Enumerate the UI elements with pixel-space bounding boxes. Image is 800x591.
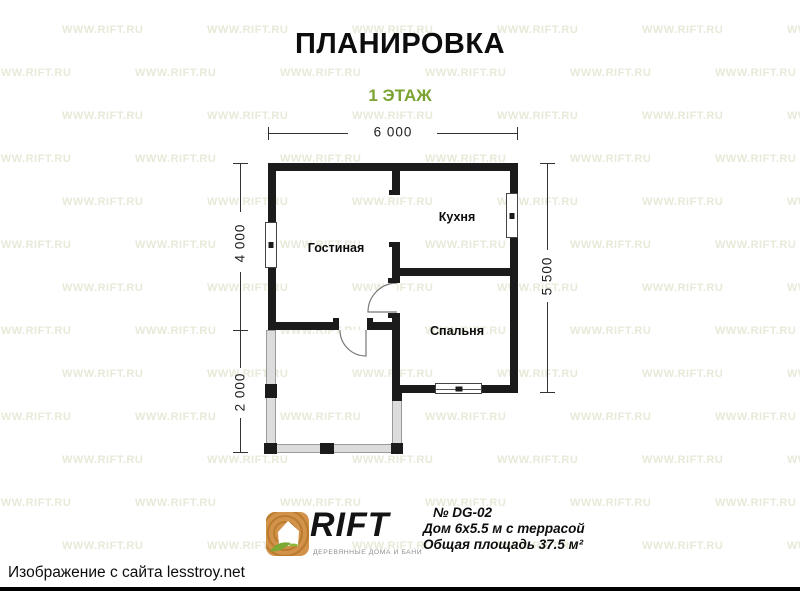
watermark-text: WWW.RIFT.RU	[135, 411, 216, 423]
window-tick	[269, 242, 274, 248]
watermark-text: WWW.RIFT.RU	[0, 153, 71, 165]
watermark-text: WWW.RIFT.RU	[0, 411, 71, 423]
watermark-text: WWW.RIFT.RU	[0, 325, 71, 337]
brand-logo-icon	[266, 512, 309, 556]
window-tick	[455, 386, 462, 391]
dim-tick	[517, 127, 518, 140]
watermark-text: WWW.RIFT.RU	[135, 239, 216, 251]
watermark-text: WWW.RIFT.RU	[62, 282, 143, 294]
door-jamb	[389, 190, 400, 195]
wall-left-upper	[268, 171, 276, 222]
door-jamb	[333, 318, 339, 330]
watermark-text: WWW.RIFT.RU	[425, 239, 506, 251]
brand-tagline: ДЕРЕВЯННЫЕ ДОМА И БАНИ	[313, 549, 422, 556]
room-label-kitchen: Кухня	[439, 210, 476, 224]
watermark-text: WWW.RIFT.RU	[497, 110, 578, 122]
watermark-text: WWW.RIFT.RU	[425, 67, 506, 79]
terrace-post	[265, 384, 277, 398]
dim-line-left-segment	[240, 163, 241, 212]
window-tick	[510, 213, 515, 219]
watermark-text: WWW.RIFT.RU	[715, 411, 796, 423]
watermark-text: WWW.RIFT.RU	[642, 282, 723, 294]
watermark-text: WWW.RIFT.RU	[207, 282, 288, 294]
dim-label-left-upper: 4 000	[233, 224, 248, 263]
dim-tick	[268, 127, 269, 140]
dim-line-left-segment	[240, 272, 241, 330]
model-area: Общая площадь 37.5 м²	[423, 537, 585, 553]
dim-line-right-segment	[547, 302, 548, 392]
wall-living-bottom-left	[276, 322, 338, 330]
watermark-text: WWW.RIFT.RU	[62, 368, 143, 380]
wall-left-lower	[268, 268, 276, 330]
watermark-text: WWW.RIFT.RU	[62, 454, 143, 466]
watermark-text: WWW.RIFT.RU	[642, 196, 723, 208]
watermark-text: WWW.RIFT.RU	[570, 239, 651, 251]
wall-top	[268, 163, 518, 171]
wall-kitchen-bottom	[392, 268, 518, 276]
watermark-text: WWW.RIFT.RU	[787, 282, 800, 294]
model-name: Дом 6х5.5 м с террасой	[423, 521, 585, 537]
model-number: № DG-02	[433, 505, 585, 521]
watermark-text: WWW.RIFT.RU	[715, 67, 796, 79]
source-caption: Изображение с сайта lesstroy.net	[8, 564, 245, 582]
dim-tick	[540, 392, 555, 393]
watermark-text: WWW.RIFT.RU	[787, 196, 800, 208]
room-label-bedroom: Спальня	[430, 324, 484, 338]
watermark-text: WWW.RIFT.RU	[135, 153, 216, 165]
dim-line-left-segment	[240, 418, 241, 452]
watermark-text: WWW.RIFT.RU	[570, 325, 651, 337]
watermark-text: WWW.RIFT.RU	[642, 540, 723, 552]
dim-line-top-right-segment	[437, 133, 518, 134]
door-jamb	[389, 242, 400, 247]
watermark-text: WWW.RIFT.RU	[135, 67, 216, 79]
page-title: ПЛАНИРОВКА	[0, 28, 800, 61]
room-label-living: Гостиная	[308, 241, 365, 255]
dim-label-left-lower: 2 000	[233, 373, 248, 412]
dim-label-width: 6 000	[374, 125, 413, 140]
window-bedroom	[435, 383, 482, 394]
brand-name: RIFT	[310, 506, 390, 545]
terrace-post	[391, 443, 403, 454]
dim-line-top-left-segment	[268, 133, 348, 134]
terrace-post	[264, 443, 277, 454]
watermark-text: WWW.RIFT.RU	[570, 153, 651, 165]
wall-right-upper	[510, 171, 518, 193]
watermark-text: WWW.RIFT.RU	[352, 110, 433, 122]
watermark-text: WWW.RIFT.RU	[352, 282, 433, 294]
watermark-text: WWW.RIFT.RU	[642, 110, 723, 122]
watermark-text: WWW.RIFT.RU	[642, 368, 723, 380]
watermark-text: WWW.RIFT.RU	[207, 368, 288, 380]
watermark-text: WWW.RIFT.RU	[787, 454, 800, 466]
dim-line-left-segment	[240, 330, 241, 368]
terrace-post	[320, 443, 334, 454]
watermark-text: WWW.RIFT.RU	[280, 67, 361, 79]
door-jamb	[388, 278, 400, 283]
watermark-text: WWW.RIFT.RU	[280, 411, 361, 423]
window-living	[265, 222, 277, 268]
dim-tick	[233, 452, 248, 453]
watermark-text: WWW.RIFT.RU	[0, 67, 71, 79]
wall-bedroom-bottom-right	[482, 385, 518, 393]
wall-divider-middle	[392, 242, 400, 283]
model-info: № DG-02 Дом 6х5.5 м с террасой Общая пло…	[423, 505, 585, 553]
watermark-text: WWW.RIFT.RU	[642, 454, 723, 466]
watermark-text: WWW.RIFT.RU	[570, 67, 651, 79]
watermark-text: WWW.RIFT.RU	[715, 239, 796, 251]
watermark-text: WWW.RIFT.RU	[62, 196, 143, 208]
watermark-text: WWW.RIFT.RU	[135, 325, 216, 337]
watermark-text: WWW.RIFT.RU	[62, 540, 143, 552]
watermark-text: WWW.RIFT.RU	[207, 454, 288, 466]
dim-line-right-segment	[547, 163, 548, 250]
watermark-text: WWW.RIFT.RU	[0, 497, 71, 509]
watermark-text: WWW.RIFT.RU	[0, 239, 71, 251]
watermark-text: WWW.RIFT.RU	[497, 454, 578, 466]
wall-right-lower	[510, 238, 518, 393]
watermark-text: WWW.RIFT.RU	[207, 110, 288, 122]
window-kitchen	[506, 193, 518, 238]
watermark-text: WWW.RIFT.RU	[715, 325, 796, 337]
watermark-text: WWW.RIFT.RU	[135, 497, 216, 509]
watermark-text: WWW.RIFT.RU	[787, 110, 800, 122]
watermark-text: WWW.RIFT.RU	[425, 411, 506, 423]
watermark-text: WWW.RIFT.RU	[352, 454, 433, 466]
terrace-post	[392, 392, 402, 401]
floor-plan-page: WWW.RIFT.RUWWW.RIFT.RUWWW.RIFT.RUWWW.RIF…	[0, 0, 800, 591]
watermark-text: WWW.RIFT.RU	[787, 368, 800, 380]
watermark-text: WWW.RIFT.RU	[62, 110, 143, 122]
door-jamb	[367, 318, 373, 330]
watermark-text: WWW.RIFT.RU	[715, 153, 796, 165]
terrace-wall-bottom	[266, 444, 402, 453]
watermark-text: WWW.RIFT.RU	[352, 196, 433, 208]
floor-subtitle: 1 ЭТАЖ	[0, 86, 800, 106]
watermark-text: WWW.RIFT.RU	[570, 411, 651, 423]
bottom-bar	[0, 587, 800, 591]
door-jamb	[388, 313, 400, 318]
watermark-text: WWW.RIFT.RU	[207, 196, 288, 208]
dim-label-right: 5 500	[540, 257, 555, 296]
watermark-text: WWW.RIFT.RU	[715, 497, 796, 509]
watermark-text: WWW.RIFT.RU	[787, 540, 800, 552]
